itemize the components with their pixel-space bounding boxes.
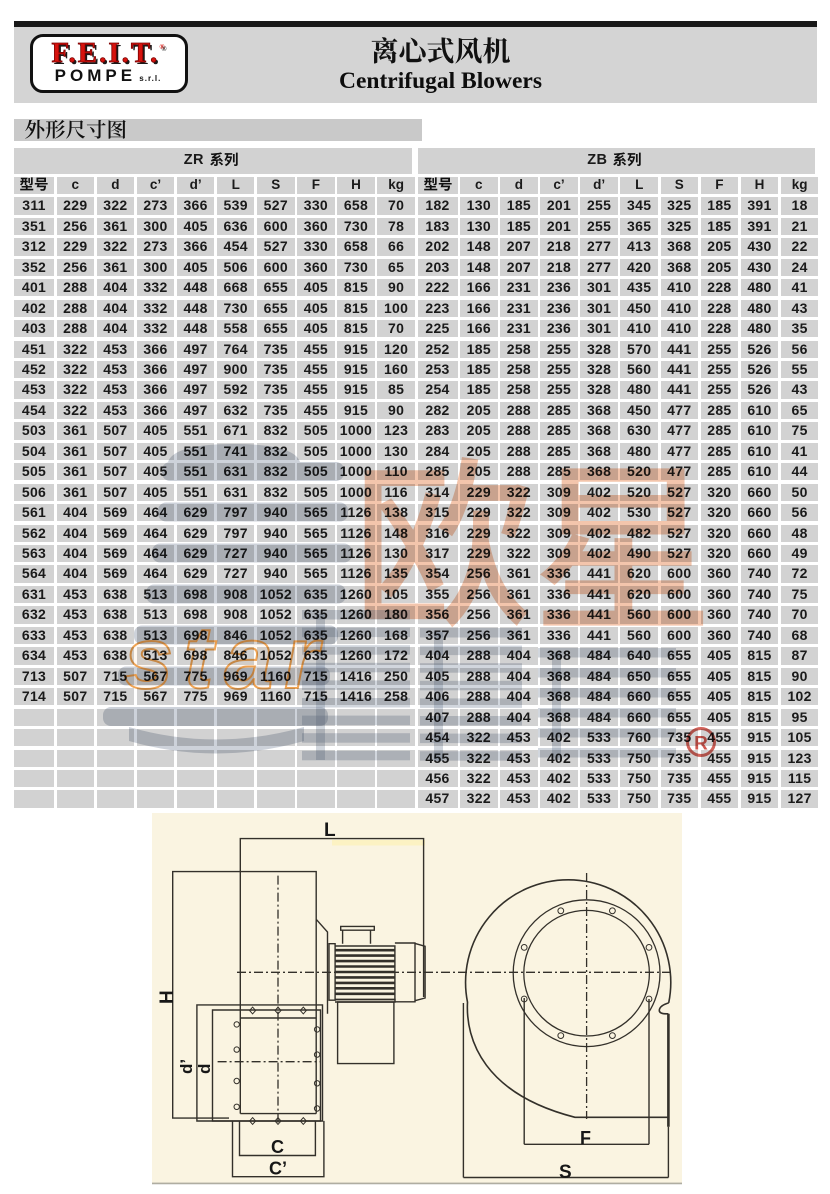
svg-text:R: R [694,734,708,755]
svg-text:d’: d’ [177,1059,196,1074]
svg-text:C’: C’ [269,1159,287,1179]
svg-text:L: L [324,820,336,841]
svg-text:H: H [157,990,178,1004]
svg-text:C: C [271,1137,284,1157]
svg-text:d: d [195,1064,214,1074]
svg-text:S: S [559,1162,572,1183]
svg-text:F: F [580,1128,591,1148]
svg-text:star: star [124,608,329,707]
